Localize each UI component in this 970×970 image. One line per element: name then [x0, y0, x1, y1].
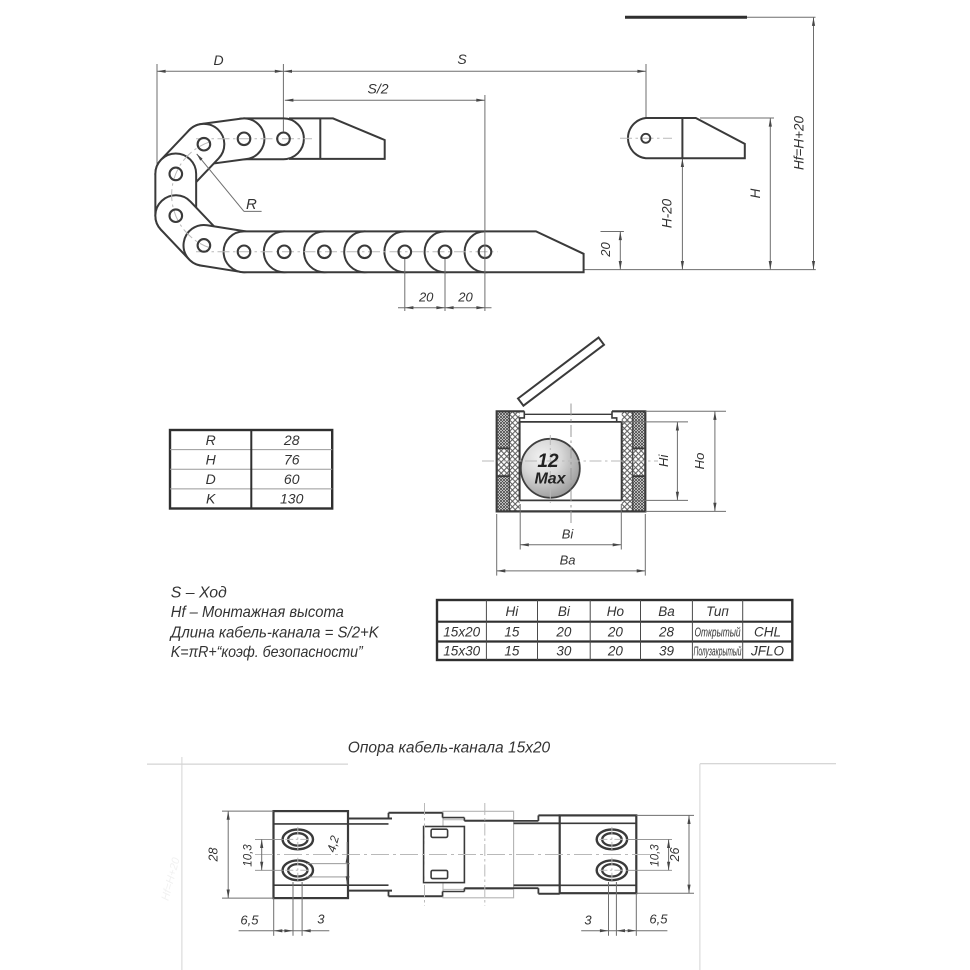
svg-text:S – Ход: S – Ход	[171, 585, 227, 602]
svg-text:CHL: CHL	[754, 625, 781, 640]
svg-text:15: 15	[504, 625, 520, 640]
svg-text:30: 30	[556, 644, 572, 659]
svg-text:3: 3	[584, 912, 592, 927]
svg-text:12: 12	[537, 451, 559, 472]
svg-text:6,5: 6,5	[240, 912, 259, 927]
svg-text:D: D	[206, 471, 216, 487]
svg-text:K: K	[206, 491, 216, 507]
svg-text:R: R	[246, 196, 257, 213]
svg-text:JFLO: JFLO	[750, 644, 785, 659]
svg-text:20: 20	[598, 242, 613, 258]
svg-text:28: 28	[207, 848, 221, 863]
svg-text:H-20: H-20	[660, 198, 675, 228]
svg-text:K=πR+“коэф. безопасности”: K=πR+“коэф. безопасности”	[171, 644, 364, 661]
svg-text:20: 20	[555, 625, 572, 640]
svg-text:28: 28	[658, 625, 675, 640]
svg-text:Hi: Hi	[506, 604, 520, 619]
svg-text:26: 26	[668, 848, 682, 863]
svg-text:Ho: Ho	[692, 453, 707, 470]
svg-text:20: 20	[457, 290, 473, 305]
svg-text:Тип: Тип	[706, 604, 729, 619]
svg-text:60: 60	[284, 471, 300, 487]
svg-text:28: 28	[283, 432, 300, 448]
svg-text:20: 20	[418, 290, 434, 305]
svg-text:Открытый: Открытый	[695, 626, 741, 640]
svg-text:76: 76	[284, 451, 300, 467]
svg-text:10,3: 10,3	[243, 844, 255, 867]
svg-text:Ho: Ho	[607, 604, 625, 619]
svg-text:Hi: Hi	[656, 454, 671, 467]
svg-text:130: 130	[280, 491, 304, 507]
svg-text:H: H	[206, 451, 217, 467]
svg-text:H: H	[748, 188, 763, 198]
svg-text:S: S	[457, 51, 467, 67]
svg-text:6,5: 6,5	[649, 911, 668, 926]
svg-text:15: 15	[504, 644, 520, 659]
svg-text:Bi: Bi	[558, 604, 571, 619]
svg-text:15х30: 15х30	[443, 644, 480, 659]
svg-text:Опора кабель-канала 15х20: Опора кабель-канала 15х20	[348, 740, 551, 757]
svg-text:Ba: Ba	[658, 604, 675, 619]
svg-text:3: 3	[317, 911, 325, 926]
svg-text:Ba: Ba	[560, 553, 576, 568]
svg-text:R: R	[206, 432, 216, 448]
svg-text:Bi: Bi	[562, 527, 575, 542]
svg-text:15х20: 15х20	[443, 625, 480, 640]
svg-text:Полузакрытый: Полузакрытый	[694, 645, 742, 659]
svg-text:Max: Max	[534, 471, 566, 488]
svg-text:Hf=H+20: Hf=H+20	[792, 115, 807, 170]
svg-text:Hf – Монтажная высота: Hf – Монтажная высота	[171, 604, 344, 621]
svg-text:Длина кабель-канала = S/2+K: Длина кабель-канала = S/2+K	[169, 625, 380, 642]
svg-text:10,3: 10,3	[650, 844, 662, 867]
svg-text:20: 20	[607, 644, 624, 659]
svg-text:D: D	[213, 52, 223, 68]
svg-text:20: 20	[607, 625, 624, 640]
svg-text:S/2: S/2	[367, 81, 388, 97]
svg-text:39: 39	[659, 644, 675, 659]
